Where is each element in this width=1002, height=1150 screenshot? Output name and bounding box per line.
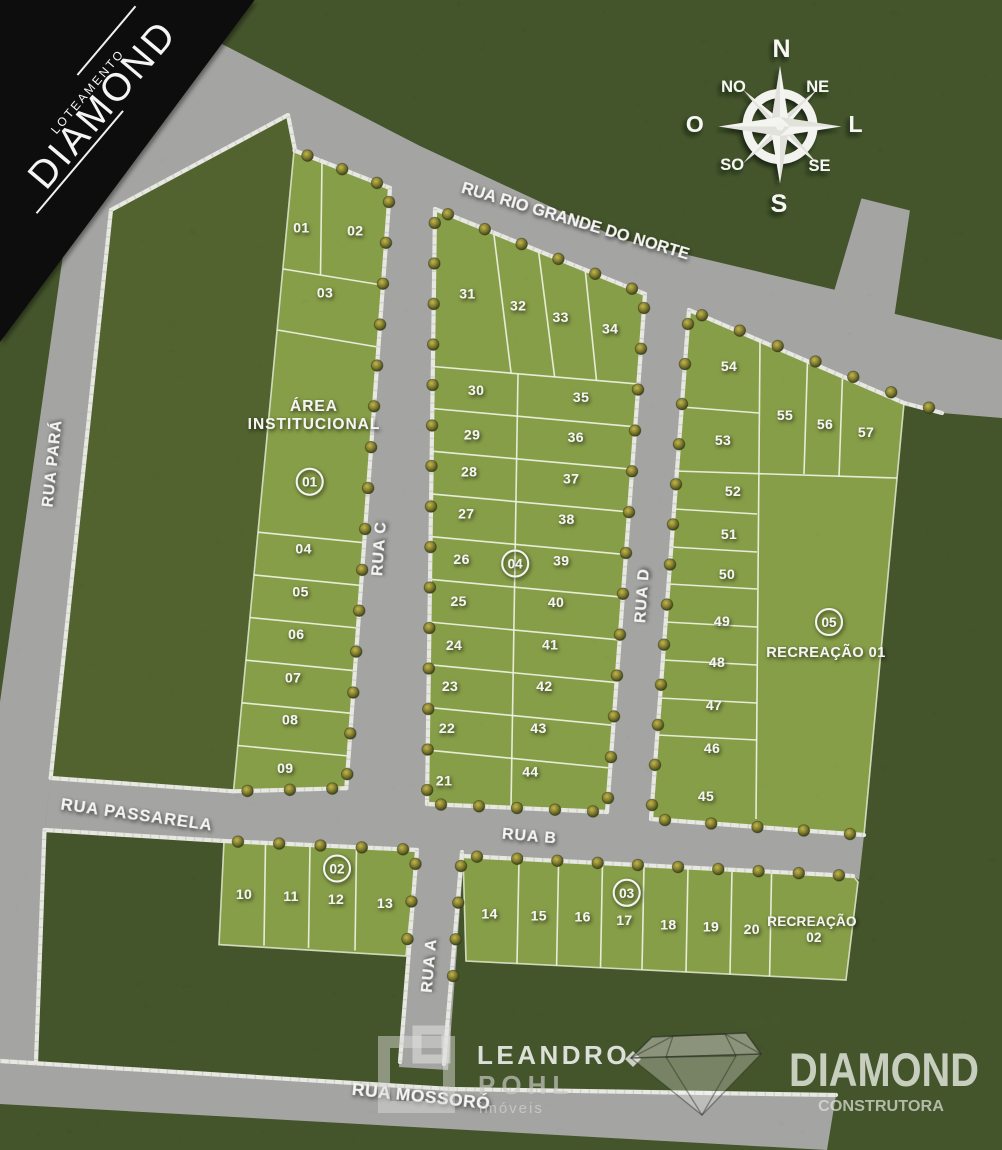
svg-text:05: 05 bbox=[821, 615, 837, 630]
svg-text:INSTITUCIONAL: INSTITUCIONAL bbox=[248, 416, 381, 433]
svg-text:CONSTRUTORA: CONSTRUTORA bbox=[818, 1098, 944, 1115]
svg-text:13: 13 bbox=[377, 895, 393, 911]
svg-text:26: 26 bbox=[453, 551, 469, 567]
svg-text:51: 51 bbox=[721, 526, 737, 542]
svg-text:28: 28 bbox=[461, 464, 477, 480]
svg-text:32: 32 bbox=[510, 297, 526, 313]
svg-text:42: 42 bbox=[536, 678, 552, 694]
svg-text:imóveis: imóveis bbox=[479, 1100, 544, 1117]
svg-text:35: 35 bbox=[573, 389, 589, 405]
svg-text:31: 31 bbox=[459, 286, 475, 302]
svg-text:24: 24 bbox=[446, 637, 462, 653]
svg-text:04: 04 bbox=[508, 557, 524, 572]
svg-text:49: 49 bbox=[714, 613, 730, 629]
svg-text:02: 02 bbox=[347, 223, 363, 239]
svg-text:S: S bbox=[771, 190, 788, 218]
svg-text:DIAMOND: DIAMOND bbox=[789, 1043, 979, 1096]
svg-text:LEANDRO: LEANDRO bbox=[477, 1040, 630, 1070]
svg-text:18: 18 bbox=[660, 916, 676, 932]
svg-text:SE: SE bbox=[808, 157, 830, 175]
svg-text:02: 02 bbox=[806, 930, 822, 945]
svg-text:20: 20 bbox=[744, 921, 760, 937]
svg-text:10: 10 bbox=[236, 886, 252, 902]
svg-text:30: 30 bbox=[468, 382, 484, 398]
svg-text:L: L bbox=[848, 111, 862, 137]
svg-text:11: 11 bbox=[283, 888, 299, 904]
svg-text:54: 54 bbox=[721, 358, 737, 374]
svg-text:07: 07 bbox=[285, 669, 301, 685]
svg-text:43: 43 bbox=[530, 720, 546, 736]
svg-text:14: 14 bbox=[481, 905, 497, 921]
svg-text:53: 53 bbox=[715, 432, 731, 448]
svg-text:25: 25 bbox=[451, 593, 467, 609]
svg-text:02: 02 bbox=[329, 862, 344, 877]
svg-text:37: 37 bbox=[563, 470, 579, 486]
svg-text:19: 19 bbox=[703, 919, 719, 935]
svg-text:21: 21 bbox=[436, 772, 452, 788]
svg-text:52: 52 bbox=[725, 483, 741, 499]
svg-text:ÁREA: ÁREA bbox=[290, 398, 338, 415]
svg-text:POHL: POHL bbox=[478, 1070, 574, 1100]
svg-text:33: 33 bbox=[553, 309, 569, 325]
svg-text:01: 01 bbox=[302, 475, 318, 490]
svg-text:03: 03 bbox=[619, 886, 635, 901]
svg-text:27: 27 bbox=[458, 505, 474, 521]
svg-text:41: 41 bbox=[542, 637, 558, 653]
svg-text:34: 34 bbox=[602, 321, 618, 337]
svg-text:RECREAÇÃO 01: RECREAÇÃO 01 bbox=[766, 643, 886, 661]
svg-text:08: 08 bbox=[282, 711, 298, 727]
svg-text:NE: NE bbox=[806, 78, 829, 96]
svg-text:NO: NO bbox=[721, 78, 746, 96]
svg-text:RECREAÇÃO: RECREAÇÃO bbox=[767, 914, 857, 929]
svg-text:36: 36 bbox=[568, 429, 584, 445]
svg-text:48: 48 bbox=[709, 654, 725, 670]
svg-text:56: 56 bbox=[817, 416, 833, 432]
svg-text:17: 17 bbox=[616, 912, 632, 928]
svg-text:16: 16 bbox=[575, 909, 591, 925]
svg-text:22: 22 bbox=[439, 720, 455, 736]
svg-text:50: 50 bbox=[719, 566, 735, 582]
svg-text:45: 45 bbox=[698, 788, 714, 804]
svg-text:44: 44 bbox=[522, 764, 538, 780]
svg-text:23: 23 bbox=[442, 678, 458, 694]
svg-text:03: 03 bbox=[317, 285, 333, 301]
svg-text:29: 29 bbox=[464, 427, 480, 443]
svg-text:04: 04 bbox=[295, 541, 311, 557]
svg-text:57: 57 bbox=[858, 424, 874, 440]
svg-text:12: 12 bbox=[328, 891, 344, 907]
svg-text:05: 05 bbox=[292, 583, 308, 599]
svg-text:09: 09 bbox=[277, 760, 293, 776]
svg-text:55: 55 bbox=[777, 407, 793, 423]
svg-text:47: 47 bbox=[706, 697, 722, 713]
svg-text:46: 46 bbox=[704, 740, 720, 756]
svg-text:06: 06 bbox=[288, 626, 304, 642]
svg-text:01: 01 bbox=[293, 220, 309, 236]
svg-text:SO: SO bbox=[720, 156, 744, 174]
svg-text:39: 39 bbox=[553, 553, 569, 569]
svg-text:38: 38 bbox=[558, 511, 574, 527]
svg-text:15: 15 bbox=[531, 908, 547, 924]
svg-text:N: N bbox=[772, 35, 790, 63]
svg-text:O: O bbox=[686, 111, 704, 137]
svg-text:40: 40 bbox=[548, 594, 564, 610]
